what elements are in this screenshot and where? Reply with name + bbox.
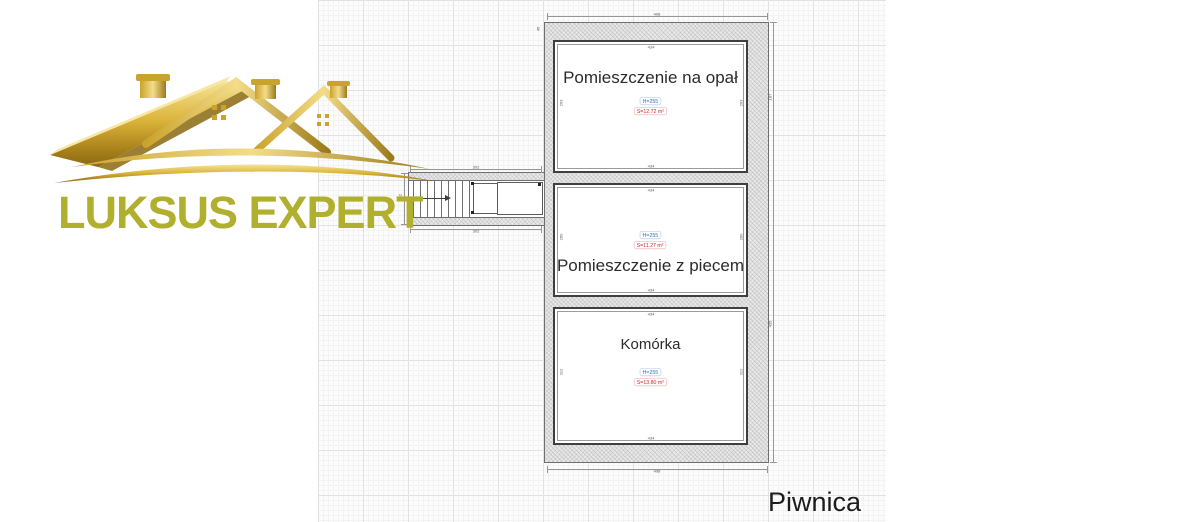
dim-label-corridor-bottom: 302 xyxy=(463,229,490,234)
dim-label-right-upper: 167 xyxy=(768,88,773,106)
room-height-badge: H=255 xyxy=(640,97,661,105)
dim-label-outer-bottom: 498 xyxy=(644,469,671,474)
stair-landing xyxy=(473,183,498,214)
dim-label-room-width: 434 xyxy=(637,45,664,50)
room-name: Pomieszczenie na opał xyxy=(555,68,746,88)
dim-label-room-width: 434 xyxy=(637,312,664,317)
dim-label-corridor-top: 302 xyxy=(463,165,490,170)
door-jamb-marker xyxy=(538,183,541,186)
dim-label-room-side-left: 293 xyxy=(559,94,564,112)
dim-label-outer-top: 498 xyxy=(644,12,671,17)
dim-label-room-width-bottom: 434 xyxy=(637,436,664,441)
room-height-badge: H=255 xyxy=(640,368,661,376)
room-area-badge: S=12.72 m² xyxy=(634,107,667,115)
room-storage-closet[interactable]: 434 Komórka H=255 S=13.80 m² 312 312 434 xyxy=(553,307,748,445)
stair-direction-arrow-icon xyxy=(445,195,451,201)
dim-label-room-width: 434 xyxy=(637,188,664,193)
dim-label-room-side-right: 293 xyxy=(739,94,744,112)
company-logo: LUKSUS EXPERT xyxy=(40,55,440,240)
door-jamb-marker xyxy=(471,211,474,214)
room-info-badges: H=255 S=13.80 m² xyxy=(555,367,746,387)
dimension-line-right xyxy=(773,22,774,463)
room-name: Komórka xyxy=(555,336,746,353)
dim-label-room-width-bottom: 434 xyxy=(637,164,664,169)
dim-label-room-width-bottom: 434 xyxy=(637,288,664,293)
dim-label-room-side-right: 312 xyxy=(739,363,744,381)
dim-label-room-side-right: 260 xyxy=(739,228,744,246)
floor-label: Piwnica xyxy=(768,487,861,518)
room-area-badge: S=11.27 m² xyxy=(634,241,667,249)
door-vestibule xyxy=(497,182,543,215)
floor-plan-viewer: LUKSUS EXPERT 498 498 167 435 45 302 302… xyxy=(0,0,1200,522)
room-fuel-storage[interactable]: 434 Pomieszczenie na opał H=255 S=12.72 … xyxy=(553,40,748,173)
logo-text: LUKSUS EXPERT xyxy=(58,187,423,239)
chimney-icon xyxy=(255,84,276,99)
chimney-icon xyxy=(136,74,170,98)
logo-roofs-icon xyxy=(40,55,440,190)
room-area-badge: S=13.80 m² xyxy=(634,378,667,386)
chimney-icon xyxy=(330,85,347,98)
window-dots-icon xyxy=(317,114,329,126)
room-name: Pomieszczenie z piecem xyxy=(555,256,746,276)
room-info-badges: H=255 S=11.27 m² xyxy=(555,230,746,250)
room-furnace[interactable]: 434 H=255 S=11.27 m² Pomieszczenie z pie… xyxy=(553,183,748,297)
dim-label-right-lower: 435 xyxy=(768,315,773,333)
room-info-badges: H=255 S=12.72 m² xyxy=(555,96,746,116)
dim-label-left-top: 45 xyxy=(536,20,541,38)
dim-label-room-side-left: 312 xyxy=(559,363,564,381)
dim-label-room-side-left: 260 xyxy=(559,228,564,246)
room-height-badge: H=255 xyxy=(640,231,661,239)
door-jamb-marker xyxy=(471,182,474,185)
